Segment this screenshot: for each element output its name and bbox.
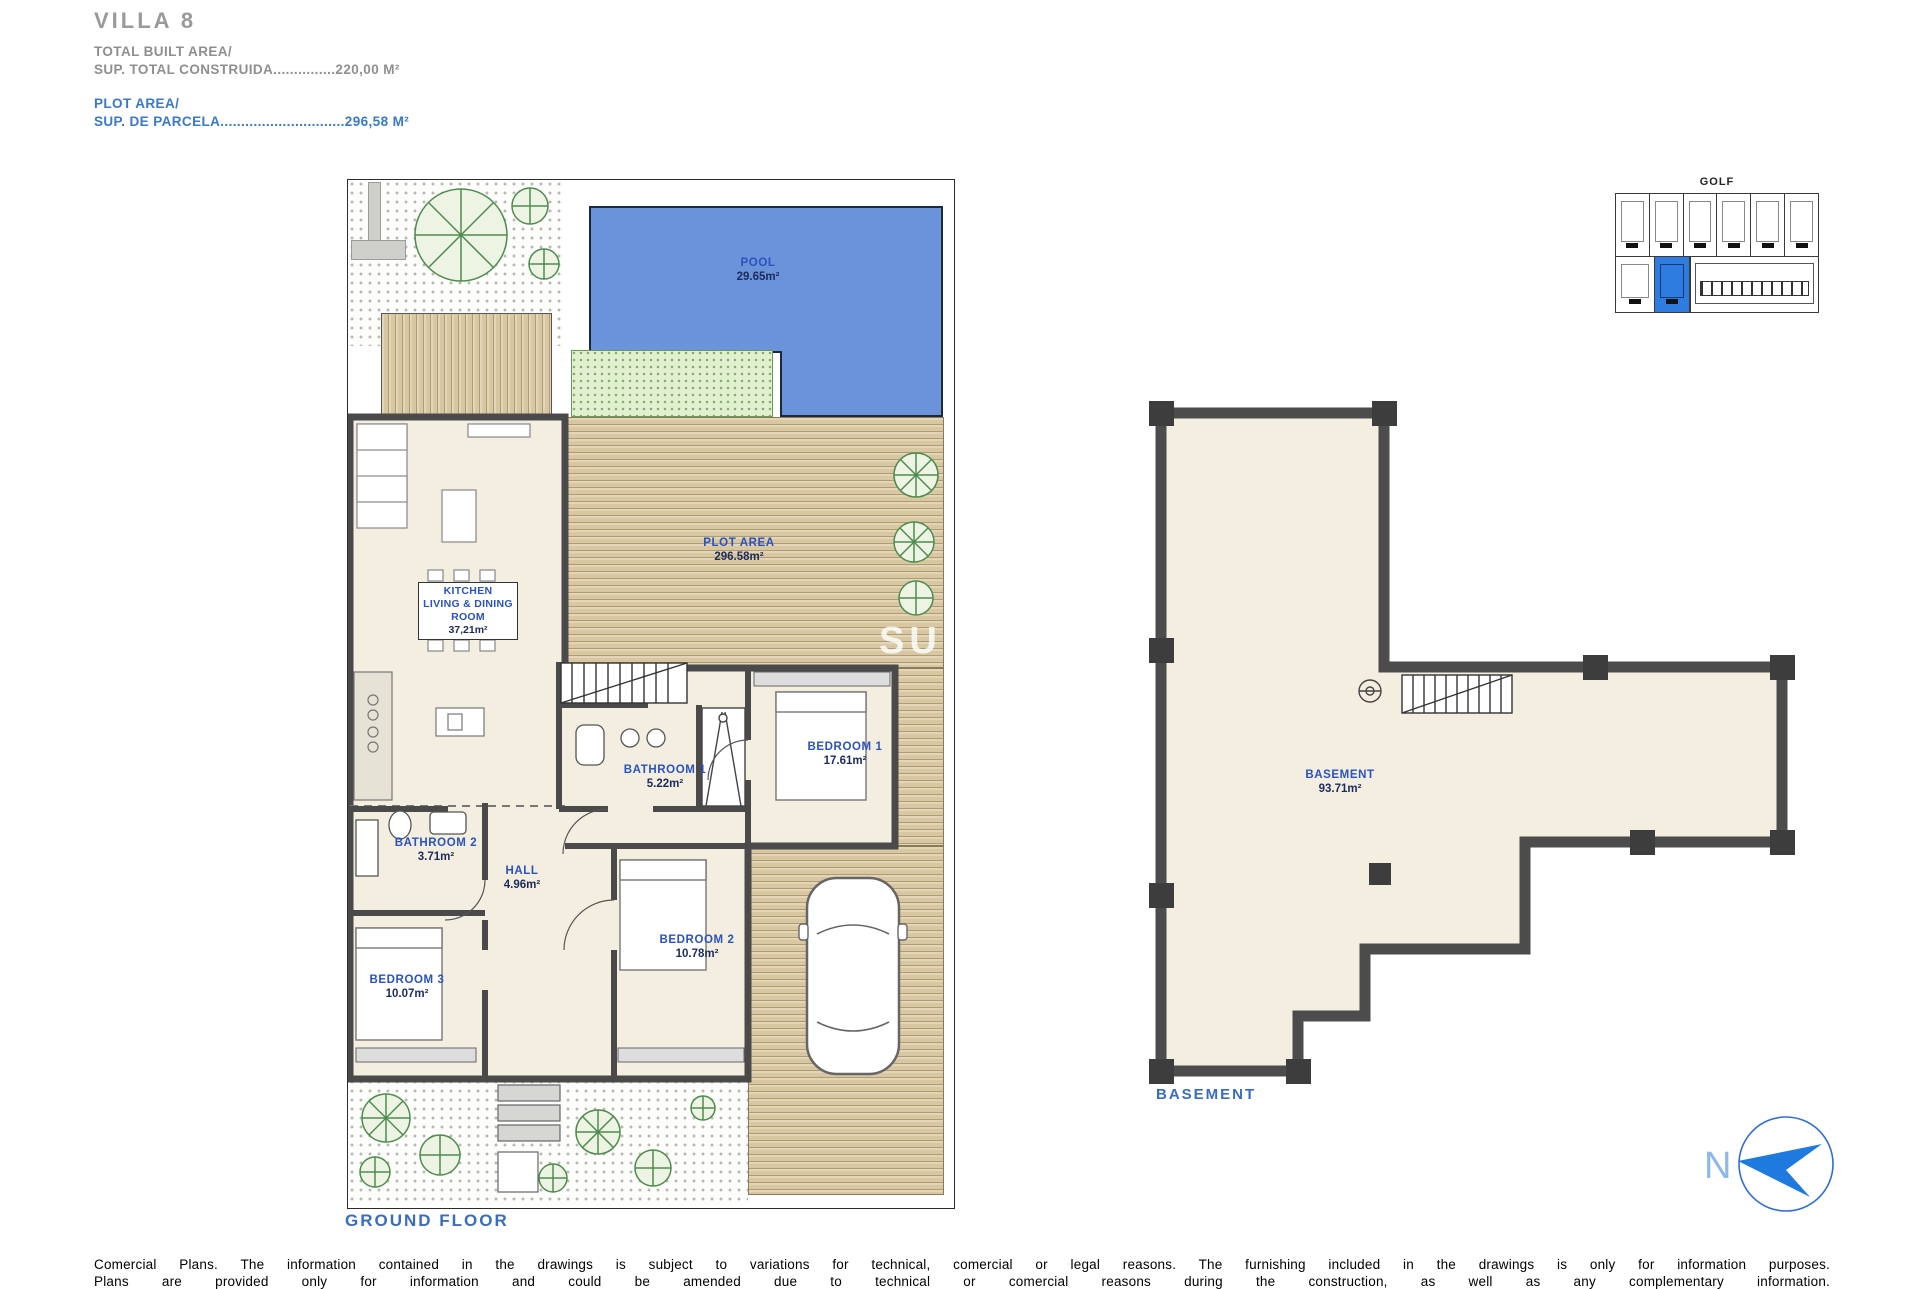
ground-floor-plan: POOL 29.65m² PLOT AREA 296.58m² KITCHEN … [347, 179, 955, 1209]
building-colonnade [1700, 281, 1809, 296]
tree-icon [529, 249, 559, 279]
villa-glyph [1621, 201, 1644, 242]
footer-disclaimer-line2: Plans are provided only for information … [94, 1274, 1830, 1289]
site-villa-cell [1650, 194, 1684, 256]
tree-icon [420, 1135, 460, 1175]
tree-icon [894, 522, 934, 562]
villa-glyph [1790, 201, 1813, 242]
car-icon [799, 878, 907, 1074]
footer-disclaimer-line1: Comercial Plans. The information contain… [94, 1257, 1830, 1272]
tree-icon [691, 1096, 715, 1120]
tree-icon [362, 1094, 410, 1142]
tree-icon [539, 1164, 567, 1192]
tree-icon [512, 188, 548, 224]
built-area-value: SUP. TOTAL CONSTRUIDA...............220,… [94, 62, 400, 77]
site-villa-cell [1717, 194, 1751, 256]
site-building-block [1690, 257, 1818, 312]
tree-icon [576, 1110, 620, 1154]
villa-glyph [1756, 201, 1779, 242]
site-villa-cell [1616, 257, 1655, 312]
ground-floor-caption: GROUND FLOOR [345, 1211, 509, 1231]
site-villa-cell [1751, 194, 1785, 256]
plot-area-label: PLOT AREA/ [94, 96, 179, 111]
basement-caption: BASEMENT [1156, 1086, 1256, 1103]
watermark: SUNS [879, 620, 955, 663]
page-title: VILLA 8 [94, 8, 196, 34]
garage-mark [1762, 243, 1774, 248]
site-villa-cell [1785, 194, 1818, 256]
garage-mark [1629, 299, 1641, 304]
compass-letter: N [1704, 1145, 1731, 1187]
compass-icon: N [1698, 1102, 1848, 1227]
site-map: GOLF [1612, 176, 1822, 313]
tree-icon [899, 581, 933, 615]
villa-glyph [1655, 201, 1678, 242]
basement-outline [1161, 413, 1782, 1071]
built-area-label: TOTAL BUILT AREA/ [94, 44, 232, 59]
garage-mark [1694, 243, 1706, 248]
site-villa-cell-highlight [1655, 257, 1690, 312]
garage-mark [1666, 299, 1678, 304]
site-map-row-bottom [1616, 257, 1818, 312]
north-compass: N [1698, 1102, 1848, 1227]
tree-icon [894, 453, 938, 497]
shower-icon [702, 708, 745, 806]
tree-icon [415, 189, 507, 281]
plot-area-block: PLOT AREA/ SUP. DE PARCELA..............… [94, 95, 409, 130]
villa-glyph [1621, 264, 1649, 298]
garage-mark [1660, 243, 1672, 248]
villa-glyph [1689, 201, 1712, 242]
villa-glyph [1660, 264, 1684, 298]
garage-mark [1626, 243, 1638, 248]
villa-glyph [1722, 201, 1745, 242]
site-villa-cell [1616, 194, 1650, 256]
garage-mark [1796, 243, 1808, 248]
built-area-block: TOTAL BUILT AREA/ SUP. TOTAL CONSTRUIDA.… [94, 43, 400, 78]
site-villa-cell [1684, 194, 1718, 256]
basement-stairs-icon [1402, 675, 1512, 713]
tree-icon [360, 1157, 390, 1187]
garage-mark [1728, 243, 1740, 248]
ground-floor-drawing [348, 180, 954, 1208]
site-map-title: GOLF [1612, 176, 1822, 188]
stairs-icon [561, 663, 687, 703]
plot-area-value: SUP. DE PARCELA.........................… [94, 114, 409, 129]
tree-icon [635, 1150, 671, 1186]
basement-drawing [1140, 395, 1820, 1095]
site-map-row-top [1616, 194, 1818, 257]
north-arrow-icon [1738, 1144, 1822, 1197]
site-map-box [1615, 193, 1819, 313]
